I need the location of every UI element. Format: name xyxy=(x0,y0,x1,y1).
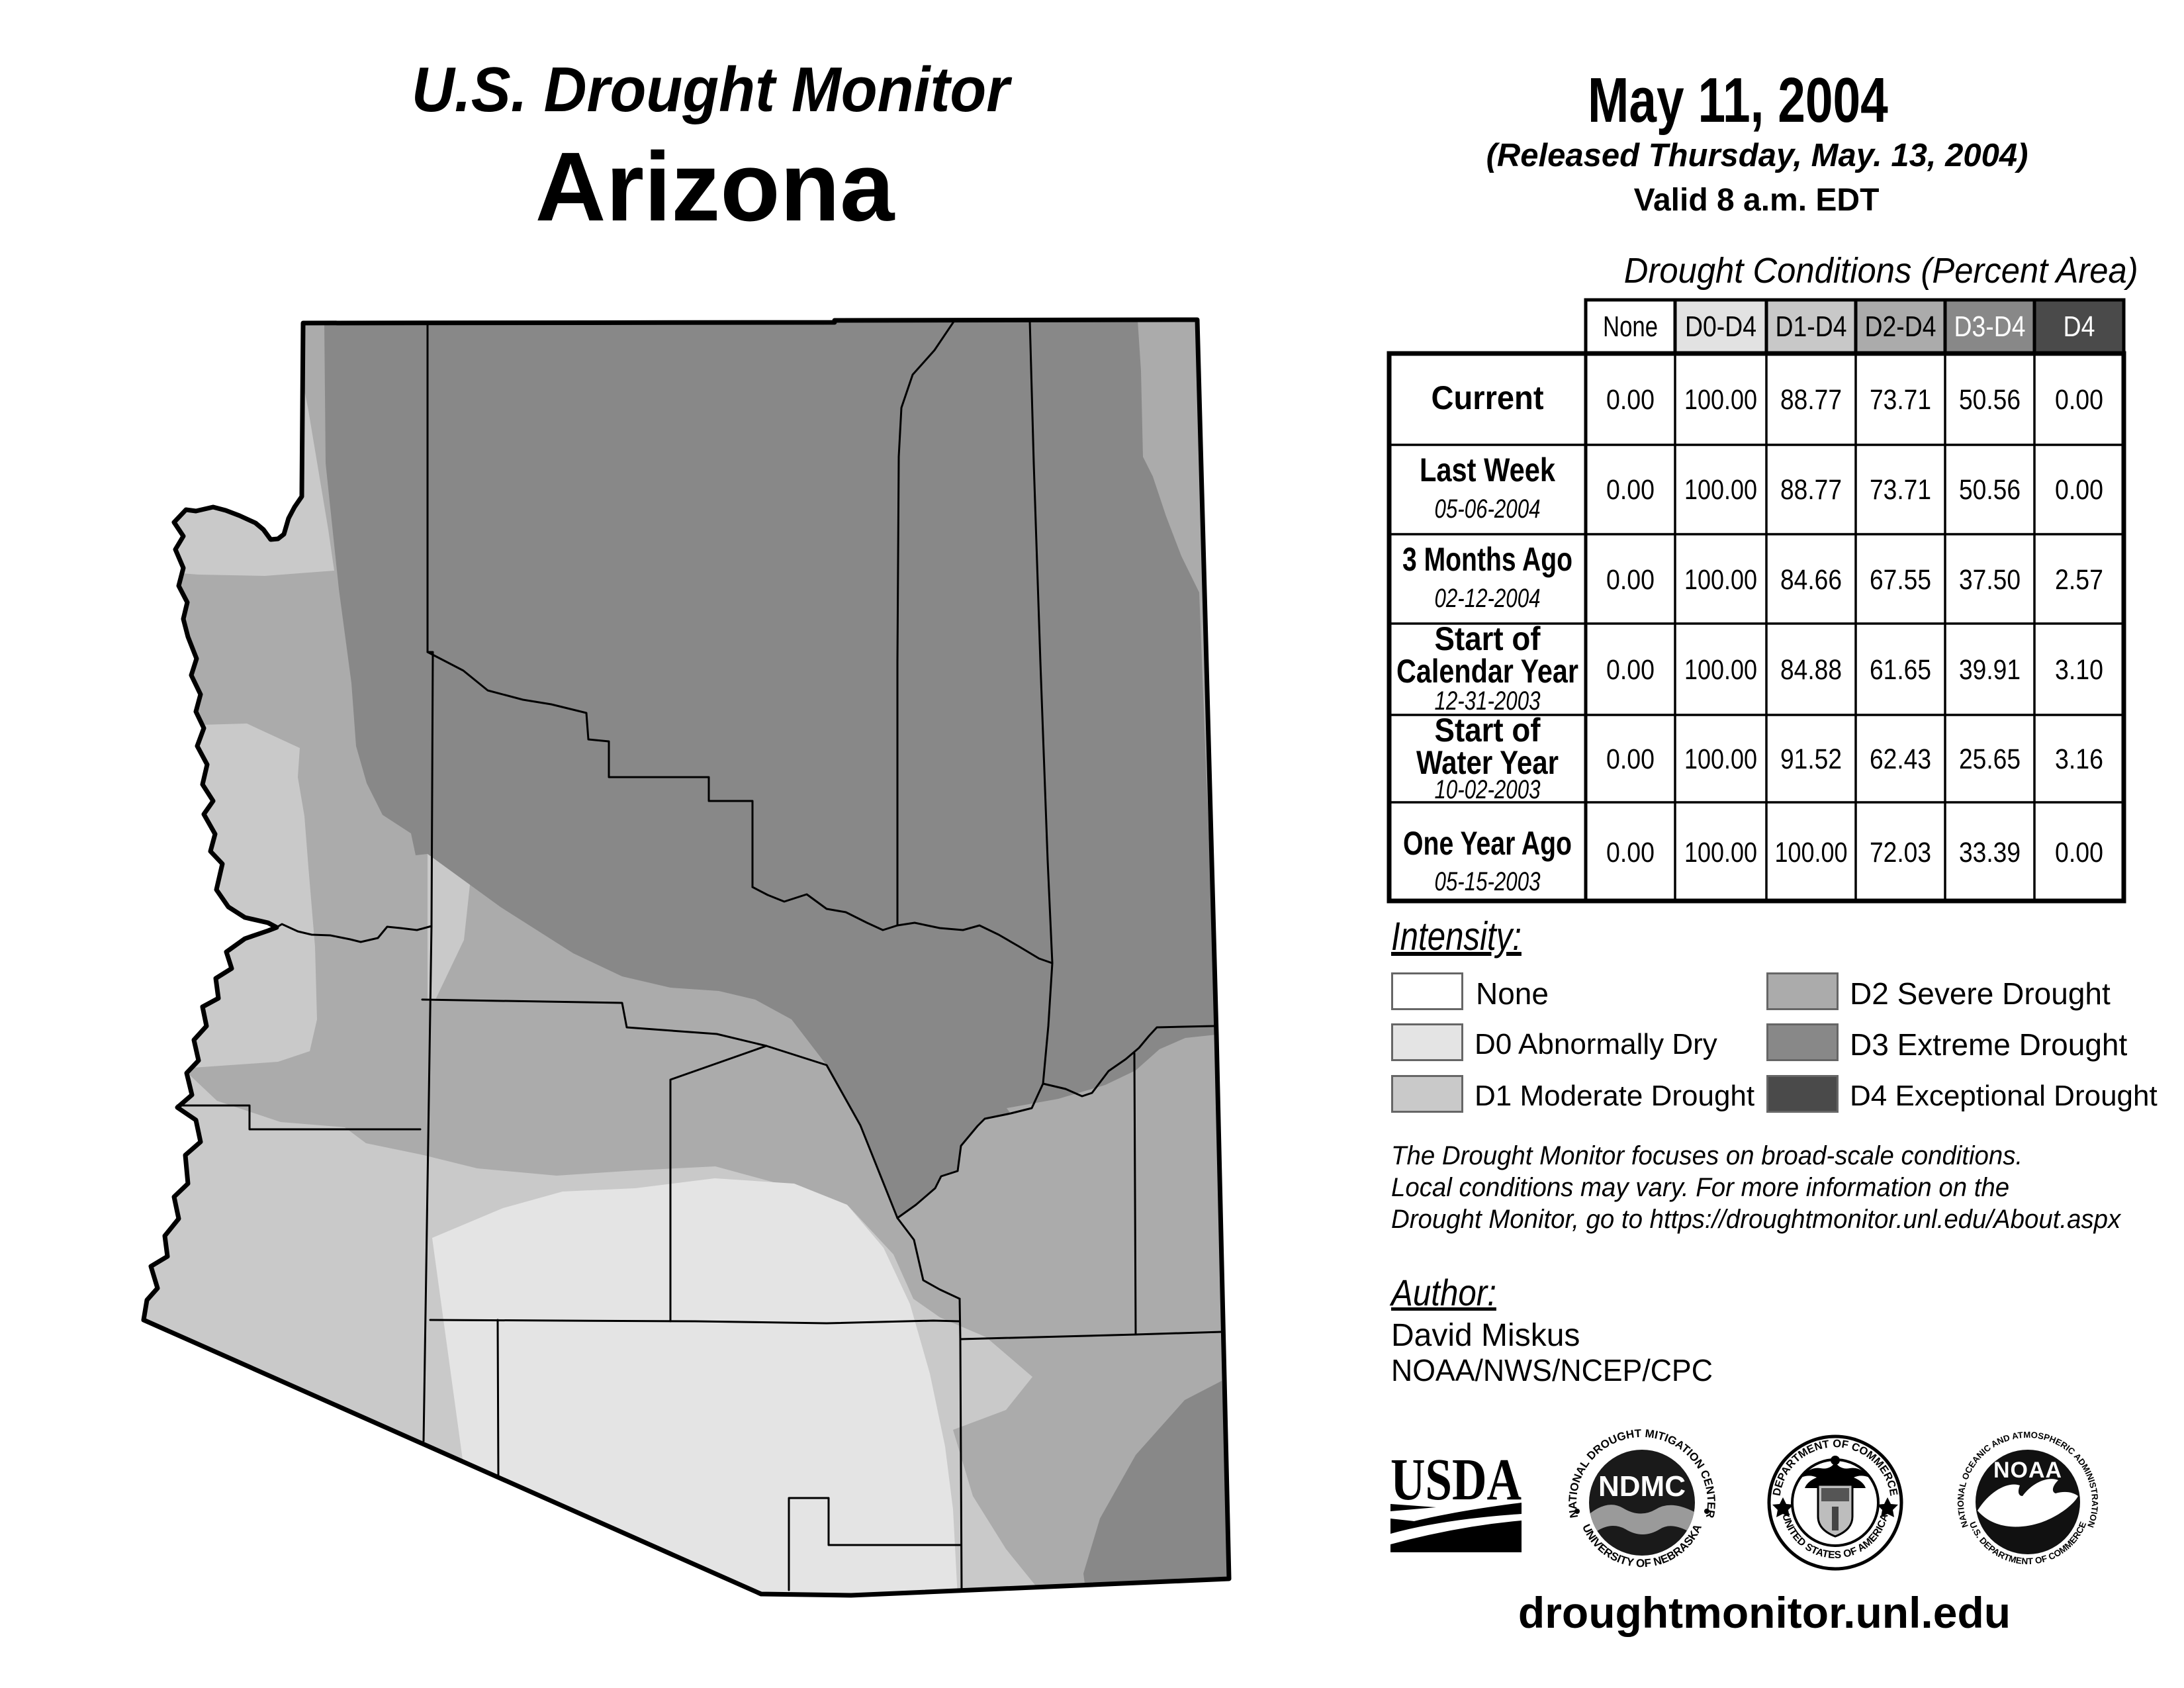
svg-text:NDMC: NDMC xyxy=(1598,1470,1686,1503)
svg-text:USDA: USDA xyxy=(1390,1447,1522,1513)
svg-text:NOAA: NOAA xyxy=(1993,1458,2062,1483)
